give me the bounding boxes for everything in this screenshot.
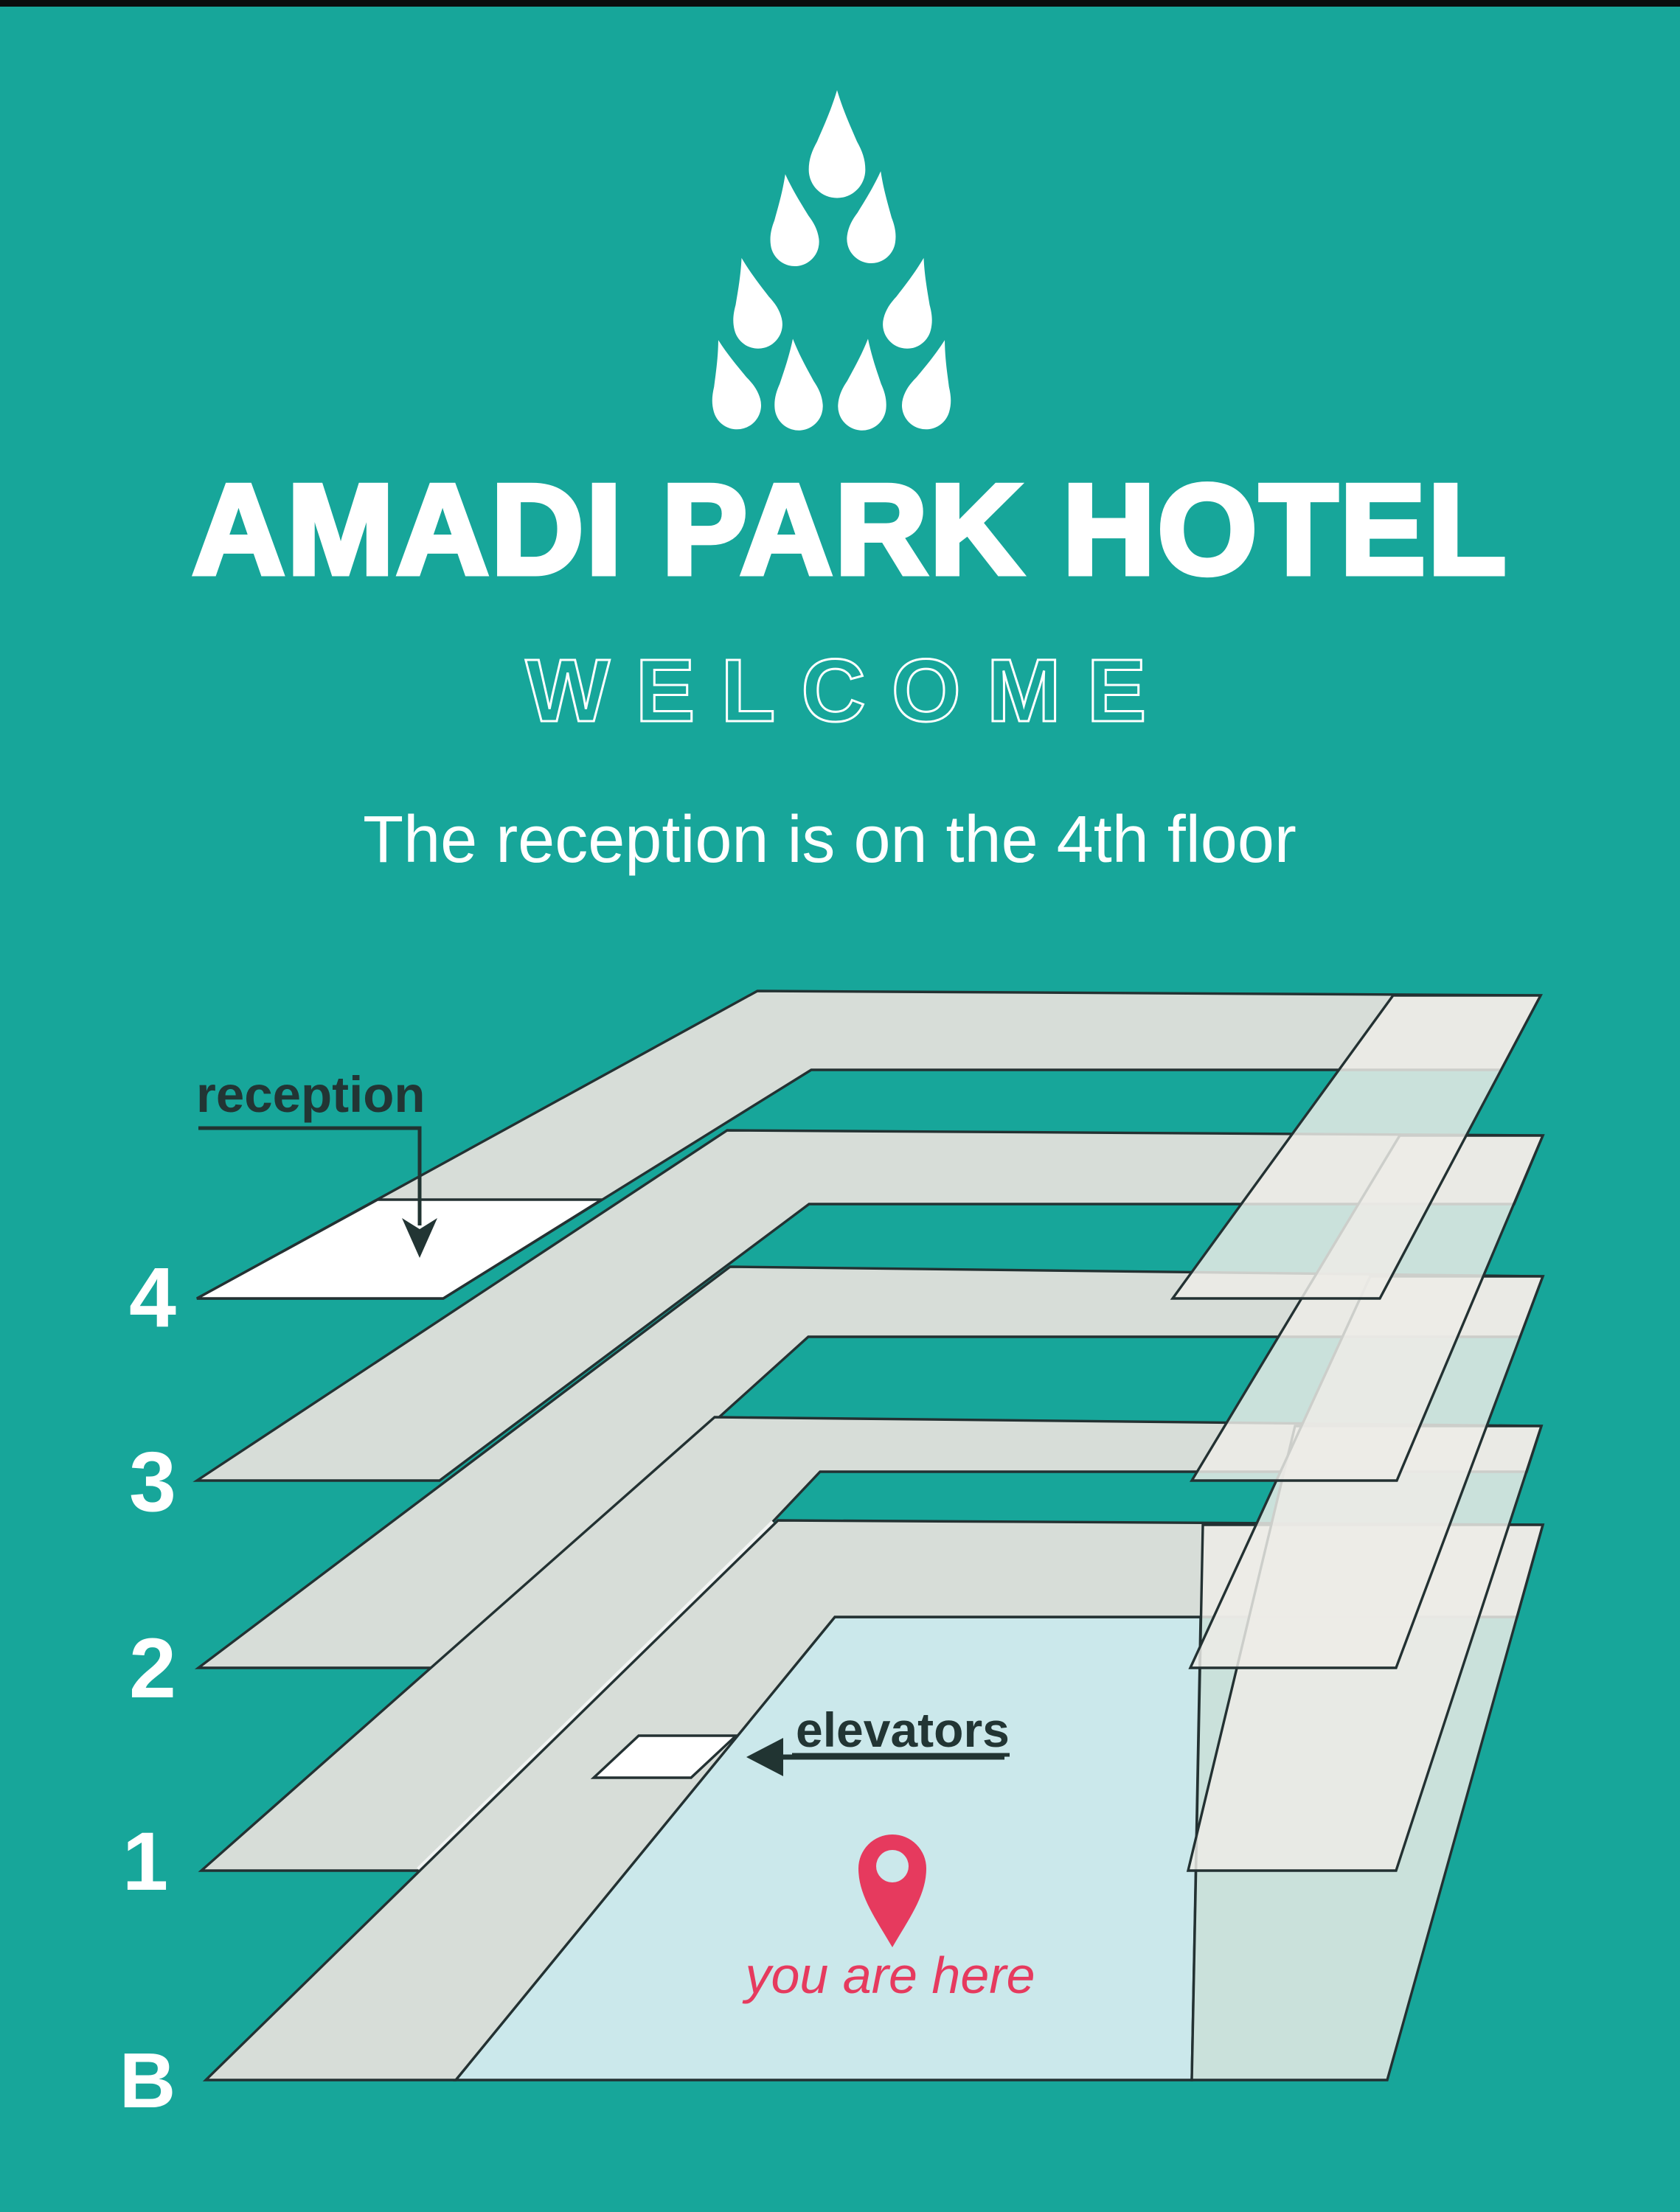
svg-text:1: 1: [122, 1815, 168, 1907]
svg-text:The reception is on the 4th fl: The reception is on the 4th floor: [363, 803, 1297, 877]
svg-text:WELCOME: WELCOME: [526, 640, 1173, 740]
svg-text:3: 3: [129, 1435, 176, 1529]
svg-text:AMADI PARK HOTEL: AMADI PARK HOTEL: [192, 457, 1509, 601]
svg-text:reception: reception: [196, 1066, 426, 1123]
svg-text:4: 4: [129, 1251, 176, 1345]
svg-text:B: B: [119, 2037, 176, 2124]
svg-text:you are here: you are here: [742, 1947, 1035, 2004]
svg-text:2: 2: [129, 1621, 176, 1716]
svg-text:elevators: elevators: [796, 1703, 1010, 1757]
